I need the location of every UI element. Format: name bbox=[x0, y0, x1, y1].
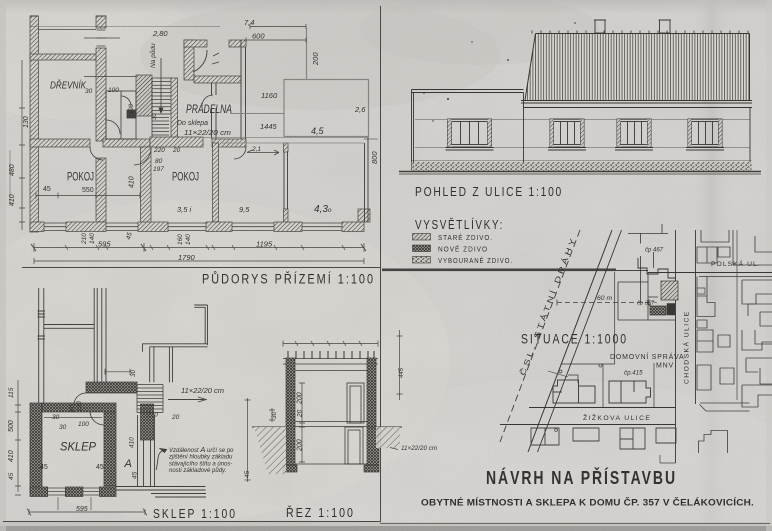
svg-text:1445: 1445 bbox=[260, 122, 278, 131]
svg-text:čp 467: čp 467 bbox=[645, 248, 664, 254]
svg-text:Do sklepa: Do sklepa bbox=[177, 118, 208, 127]
svg-text:210: 210 bbox=[81, 233, 88, 245]
svg-text:9,5: 9,5 bbox=[239, 205, 250, 214]
svg-text:410: 410 bbox=[8, 450, 15, 462]
svg-text:NOVÉ ZDIVO: NOVÉ ZDIVO bbox=[438, 245, 488, 254]
svg-text:200: 200 bbox=[311, 52, 320, 66]
svg-text:190: 190 bbox=[129, 103, 135, 114]
svg-text:VYBOURANÉ ZDIVO.: VYBOURANÉ ZDIVO. bbox=[438, 256, 513, 265]
svg-text:45: 45 bbox=[96, 464, 104, 471]
svg-text:595: 595 bbox=[98, 240, 111, 249]
svg-text:197: 197 bbox=[153, 166, 164, 173]
svg-text:20: 20 bbox=[297, 409, 304, 418]
svg-text:1160: 1160 bbox=[261, 91, 278, 100]
svg-text:600: 600 bbox=[252, 32, 265, 41]
svg-text:4,5: 4,5 bbox=[311, 126, 325, 136]
svg-text:Na půdu: Na půdu bbox=[149, 43, 157, 68]
svg-text:160: 160 bbox=[177, 234, 184, 245]
svg-text:410: 410 bbox=[129, 176, 136, 188]
svg-text:ŘEZ 1:100: ŘEZ 1:100 bbox=[286, 505, 355, 520]
svg-text:410: 410 bbox=[9, 194, 16, 206]
svg-text:20: 20 bbox=[172, 147, 181, 154]
svg-text:A: A bbox=[124, 458, 132, 470]
svg-text:2,80: 2,80 bbox=[152, 29, 168, 38]
svg-text:45: 45 bbox=[132, 471, 139, 479]
svg-text:140: 140 bbox=[89, 233, 96, 244]
svg-text:200: 200 bbox=[297, 439, 304, 452]
svg-text:445: 445 bbox=[399, 367, 405, 378]
svg-text:11×22/20 cm: 11×22/20 cm bbox=[401, 445, 437, 452]
svg-text:30: 30 bbox=[130, 369, 137, 377]
svg-text:45: 45 bbox=[8, 472, 15, 480]
svg-text:1195: 1195 bbox=[256, 240, 273, 249]
svg-text:7,4: 7,4 bbox=[244, 18, 254, 27]
svg-text:220: 220 bbox=[153, 147, 165, 154]
svg-text:CHODSKÁ ULICE: CHODSKÁ ULICE bbox=[682, 310, 691, 384]
svg-text:SITUACE 1:1000: SITUACE 1:1000 bbox=[521, 332, 628, 347]
svg-text:SKLEP: SKLEP bbox=[60, 440, 96, 454]
svg-text:POKOJ: POKOJ bbox=[172, 172, 199, 184]
svg-text:80: 80 bbox=[69, 404, 76, 412]
svg-text:POLSKÁ UL.: POLSKÁ UL. bbox=[711, 259, 761, 268]
svg-text:3,5 i: 3,5 i bbox=[177, 205, 192, 214]
svg-text:nosti základové půdy.: nosti základové půdy. bbox=[169, 467, 226, 474]
svg-text:2,6: 2,6 bbox=[354, 105, 366, 114]
svg-text:čp.415: čp.415 bbox=[624, 370, 643, 377]
svg-text:80: 80 bbox=[155, 158, 163, 165]
svg-text:30: 30 bbox=[152, 113, 158, 120]
svg-text:20: 20 bbox=[171, 414, 180, 421]
svg-text:DŘEVNÍK: DŘEVNÍK bbox=[50, 79, 87, 92]
svg-text:595: 595 bbox=[76, 506, 88, 513]
svg-text:stávajícího štítu a únos-: stávajícího štítu a únos- bbox=[169, 461, 232, 467]
svg-text:480: 480 bbox=[9, 164, 16, 176]
svg-text:2,1: 2,1 bbox=[251, 146, 261, 153]
svg-text:410: 410 bbox=[129, 437, 136, 448]
svg-text:30: 30 bbox=[59, 424, 67, 431]
svg-text:11×22/20 cm: 11×22/20 cm bbox=[181, 386, 224, 395]
svg-text:DOMOVNÍ SPRÁVA: DOMOVNÍ SPRÁVA bbox=[610, 352, 684, 361]
svg-text:1790: 1790 bbox=[178, 253, 196, 262]
svg-text:30: 30 bbox=[52, 414, 60, 421]
svg-text:POKOJ: POKOJ bbox=[67, 172, 94, 184]
svg-text:45: 45 bbox=[43, 186, 51, 193]
svg-text:200: 200 bbox=[297, 392, 304, 405]
svg-text:30: 30 bbox=[85, 88, 93, 95]
svg-text:OBYTNÉ MÍSTNOSTI A SKLEPA K DO: OBYTNÉ MÍSTNOSTI A SKLEPA K DOMU ČP. 357… bbox=[421, 497, 754, 508]
svg-text:100: 100 bbox=[108, 87, 119, 94]
svg-text:100: 100 bbox=[78, 421, 89, 428]
svg-text:zjištění hloubky základu: zjištění hloubky základu bbox=[168, 455, 233, 461]
svg-text:500: 500 bbox=[8, 420, 15, 432]
svg-text:130: 130 bbox=[23, 116, 30, 128]
svg-text:140: 140 bbox=[185, 234, 192, 245]
svg-text:SKLEP 1:100: SKLEP 1:100 bbox=[153, 506, 237, 521]
svg-text:MNV: MNV bbox=[656, 363, 674, 370]
svg-text:190: 190 bbox=[76, 401, 83, 412]
svg-text:220: 220 bbox=[146, 412, 158, 419]
svg-text:11×22/20 cm: 11×22/20 cm bbox=[184, 128, 231, 137]
svg-text:45: 45 bbox=[40, 464, 48, 471]
svg-text:STARÉ ZDIVO.: STARÉ ZDIVO. bbox=[438, 233, 493, 242]
svg-text:VYSVĚTLÍVKY:: VYSVĚTLÍVKY: bbox=[415, 217, 504, 232]
svg-text:550: 550 bbox=[82, 187, 94, 194]
svg-text:NÁVRH NA PŘÍSTAVBU: NÁVRH NA PŘÍSTAVBU bbox=[486, 467, 677, 488]
svg-text:POHLED Z ULICE 1:100: POHLED Z ULICE 1:100 bbox=[415, 184, 563, 199]
svg-text:PŮDORYS PŘÍZEMÍ 1:100: PŮDORYS PŘÍZEMÍ 1:100 bbox=[202, 272, 375, 287]
svg-text:800: 800 bbox=[370, 151, 379, 164]
svg-text:115: 115 bbox=[8, 387, 15, 398]
svg-text:ŽIŽKOVA ULICE: ŽIŽKOVA ULICE bbox=[583, 413, 651, 422]
svg-text:PRÁDELNA: PRÁDELNA bbox=[186, 103, 232, 116]
svg-text:45: 45 bbox=[244, 470, 251, 478]
svg-text:60 m: 60 m bbox=[597, 295, 612, 302]
